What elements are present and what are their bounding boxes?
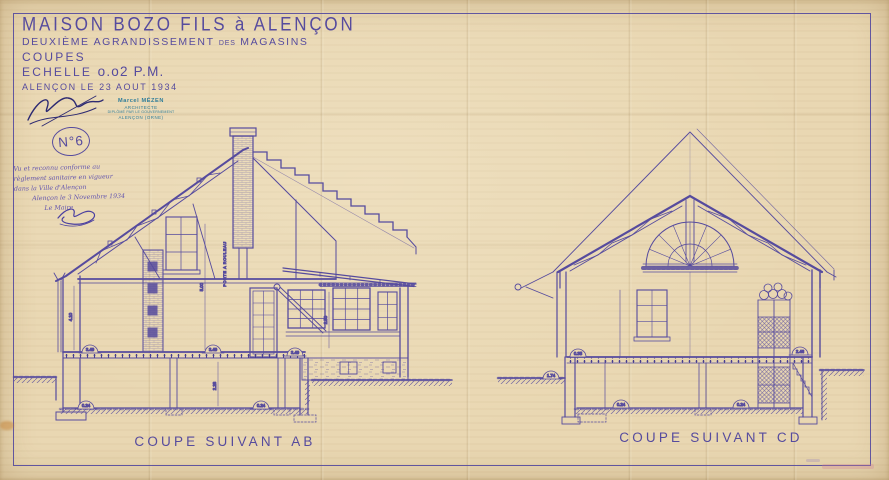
ab-dim-height-3: 2.28 — [212, 381, 217, 390]
drawing-subtitle: DEUXIÈME AGRANDISSEMENT DES MAGASINS — [22, 37, 356, 48]
ab-caption: COUPE SUIVANT AB — [134, 434, 315, 449]
scale-line: ECHELLE o.o2 P.M. — [22, 65, 356, 79]
drawing-type: COUPES — [22, 51, 356, 64]
ab-annotation: PORTE A ROULEAU — [222, 241, 227, 286]
cd-floor — [567, 357, 812, 363]
ab-dim-floor-2: 3.49 — [209, 347, 218, 352]
stamp-city: ALENÇON (ORNE) — [86, 115, 196, 121]
stamp-name: Marcel MÉZEN — [86, 98, 196, 105]
ab-basement — [56, 352, 316, 422]
cd-dim-base-2: 0.24 — [737, 402, 746, 407]
coupe-cd-drawing: 0.35 2.46 1.74 0.24 0.24 COUPE SUIVANT C… — [498, 129, 864, 445]
subtitle-main: DEUXIÈME AGRANDISSEMENT — [22, 36, 214, 48]
drawing-number: N°6 — [58, 133, 85, 150]
subtitle-end: MAGASINS — [240, 36, 308, 48]
stepped-gable — [253, 152, 416, 254]
attic-window — [163, 217, 200, 274]
cd-shaft — [758, 283, 812, 407]
ab-dim-base-1: 0.24 — [82, 403, 91, 408]
cd-roof-outline — [515, 129, 836, 298]
cd-dim-floor-2: 2.46 — [796, 349, 805, 354]
paper-stain — [0, 421, 14, 430]
ab-dim-floor-3: 3.49 — [291, 350, 300, 355]
architect-stamp: Marcel MÉZEN ARCHITECTE DIPLÔMÉ PAR LE G… — [86, 98, 196, 120]
date-line: ALENÇON LE 23 AOUT 1934 — [22, 83, 356, 92]
ab-dim-height-1: 4.10 — [68, 312, 73, 321]
drawing-title: MAISON BOZO FILS à ALENÇON — [22, 15, 356, 35]
cd-dim-ground: 1.74 — [547, 373, 556, 378]
ab-dimensions — [74, 224, 329, 409]
cd-dim-floor-1: 0.35 — [574, 351, 583, 356]
ab-dim-height-4: 2.50 — [323, 315, 328, 324]
faint-pencil-mark — [806, 459, 820, 462]
chimney — [230, 128, 256, 248]
ab-dim-height-2: 5.00 — [199, 282, 204, 291]
scale-value: o.o2 P.M. — [98, 64, 165, 79]
left-wall — [54, 273, 80, 352]
cd-dim-base-1: 0.24 — [617, 402, 626, 407]
ab-dim-floor-1: 3.49 — [86, 347, 95, 352]
cd-caption: COUPE SUIVANT CD — [619, 430, 802, 445]
ab-dim-base-2: 0.24 — [257, 403, 266, 408]
blueprint-page: 3.49 3.49 3.49 0.24 0.24 4.10 5.00 2.28 … — [0, 0, 889, 480]
approval-note: Vu et reconnu conforme au règlement sani… — [13, 161, 149, 215]
brick-pier — [143, 250, 163, 352]
faint-archive-stamp — [822, 464, 874, 469]
subtitle-small: DES — [219, 40, 236, 47]
scale-label: ECHELLE — [22, 65, 92, 79]
wing-shopfront — [250, 268, 416, 380]
title-block: MAISON BOZO FILS à ALENÇON DEUXIÈME AGRA… — [22, 15, 356, 92]
